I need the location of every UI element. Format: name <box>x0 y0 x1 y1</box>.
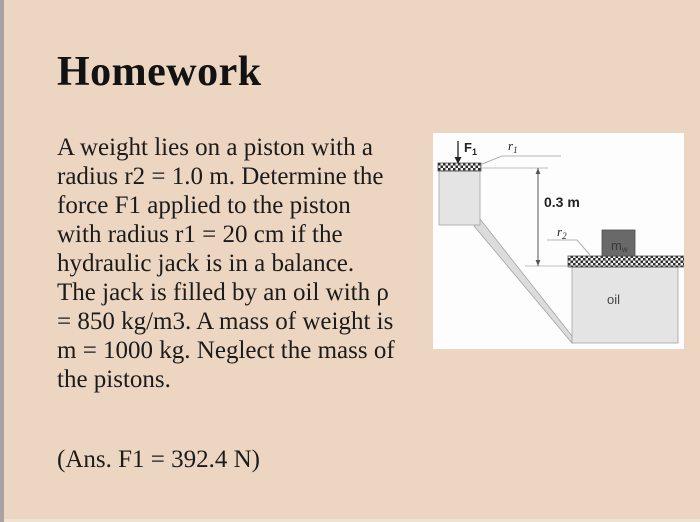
problem-text-line: radius r2 = 1.0 m. Determine the <box>57 162 395 191</box>
height-dimension-label: 0.3 m <box>544 194 580 210</box>
problem-text-line: = 850 kg/m3. A mass of weight is <box>57 307 395 336</box>
problem-text-line: with radius r1 = 20 cm if the <box>57 220 395 249</box>
large-piston-hatch <box>568 256 684 267</box>
r1-leader-line <box>482 156 561 164</box>
problem-text-line: force F1 applied to the piston <box>57 191 395 220</box>
answer-text: (Ans. F1 = 392.4 N) <box>57 446 260 474</box>
problem-text-line: m = 1000 kg. Neglect the mass of <box>57 336 395 365</box>
oil-label: oil <box>607 292 620 307</box>
homework-slide: Homework A weight lies on a piston with … <box>0 0 700 522</box>
oil-container <box>572 267 678 343</box>
dimension-arrow-down-icon <box>536 260 541 266</box>
problem-text-line: A weight lies on a piston with a <box>57 133 395 162</box>
hydraulic-jack-diagram: mw oil F1 r1 0.3 m r2 <box>433 133 684 349</box>
force-label: F1 <box>464 140 477 157</box>
left-edge-strip <box>0 0 4 522</box>
problem-statement: A weight lies on a piston with aradius r… <box>57 133 395 394</box>
problem-text-line: The jack is filled by an oil with ρ <box>57 278 395 307</box>
slide-title: Homework <box>57 48 262 96</box>
r2-leader-line <box>547 240 590 255</box>
hydraulic-jack-figure: mw oil F1 r1 0.3 m r2 <box>433 133 684 349</box>
r1-label: r1 <box>508 138 518 155</box>
small-piston-hatch <box>438 163 481 171</box>
problem-text-line: the pistons. <box>57 365 395 394</box>
dimension-arrow-up-icon <box>536 168 541 174</box>
small-cylinder <box>439 171 480 225</box>
problem-text-line: hydraulic jack is in a balance. <box>57 249 395 278</box>
r2-label: r2 <box>557 224 567 241</box>
